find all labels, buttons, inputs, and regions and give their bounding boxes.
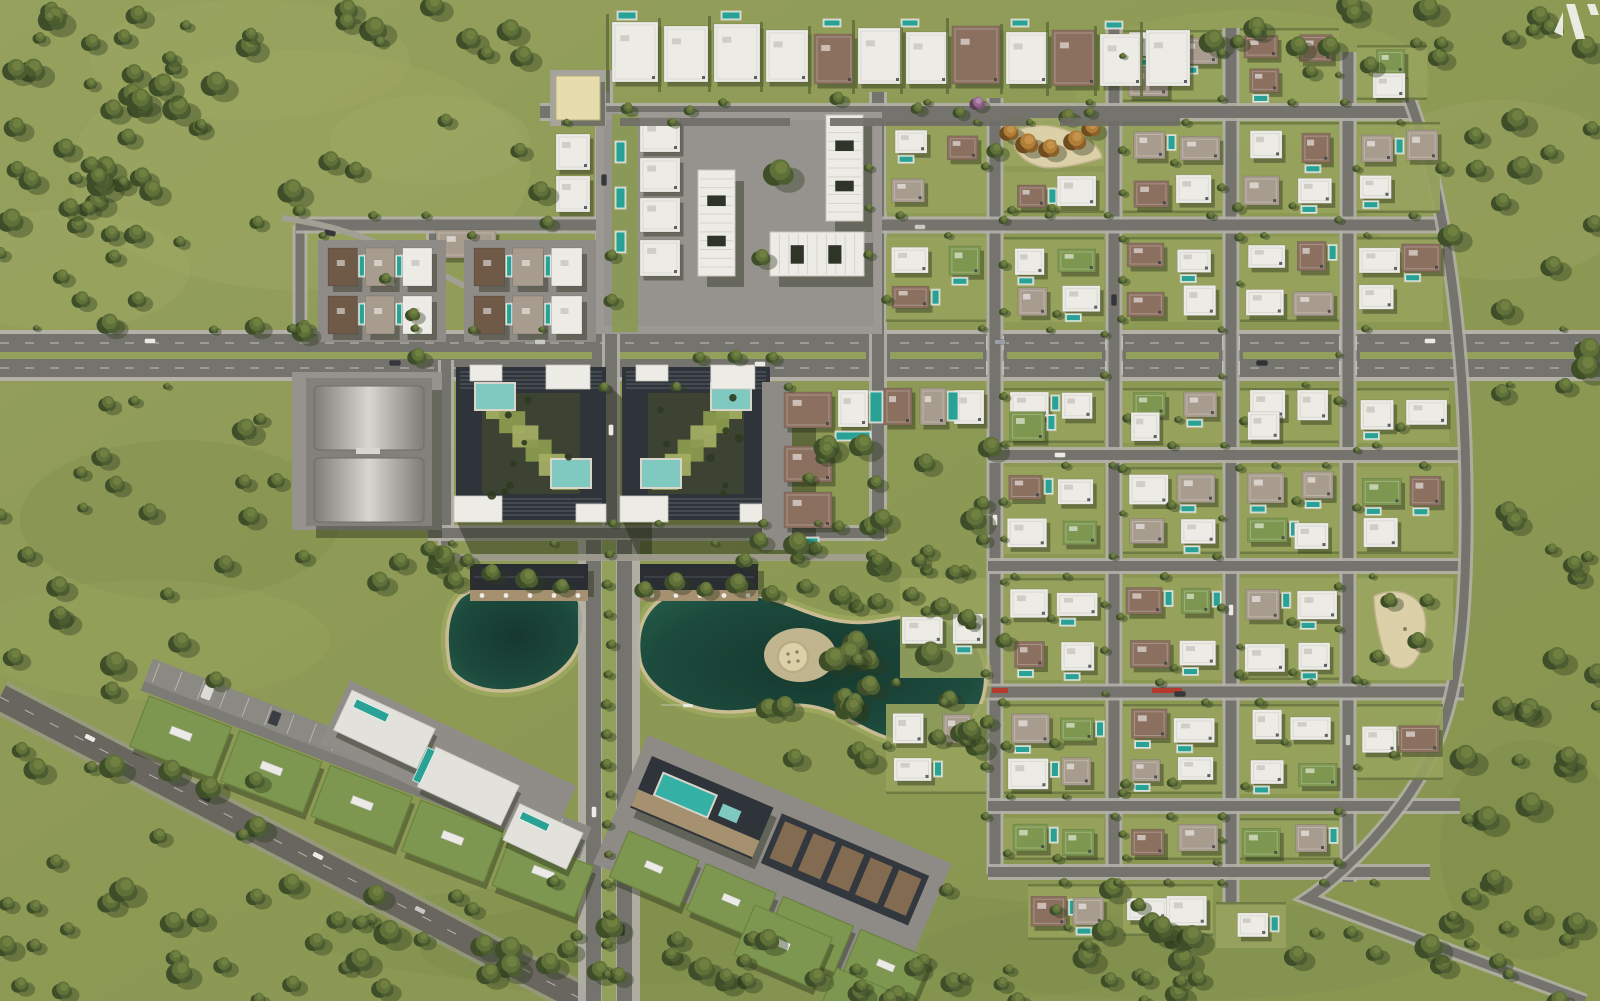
swimming-pool (1066, 315, 1080, 321)
residential-block (1122, 818, 1222, 863)
house (891, 179, 924, 202)
house (1250, 131, 1282, 159)
swimming-pool (1051, 762, 1058, 776)
swimming-pool (1019, 278, 1033, 284)
house (894, 758, 932, 781)
house (949, 246, 981, 275)
house (1242, 828, 1280, 857)
swimming-pool (616, 232, 625, 252)
residential-block (1232, 122, 1339, 215)
house (1290, 717, 1331, 740)
residential-block (998, 467, 1104, 554)
aerial-masterplan-view: Aerial masterplan rendering of a residen… (0, 0, 1600, 1001)
swimming-pool (1406, 275, 1420, 281)
villa (838, 390, 868, 427)
townhouse (513, 296, 544, 334)
residential-block (1003, 818, 1104, 865)
house (1248, 245, 1285, 268)
white-cube-house (640, 158, 680, 192)
house (1237, 913, 1268, 937)
house (1061, 758, 1090, 786)
house (1402, 244, 1441, 272)
house (1061, 642, 1094, 671)
warehouse-buildings (292, 372, 442, 538)
house (1294, 523, 1328, 549)
swimming-pool (932, 290, 939, 304)
swimming-pool (1255, 787, 1269, 793)
house (1010, 412, 1045, 441)
house (1362, 726, 1396, 752)
swimming-pool (1181, 276, 1195, 282)
house (1177, 249, 1211, 272)
car (915, 225, 926, 230)
house (1361, 135, 1393, 162)
car (602, 175, 607, 186)
villa (612, 22, 658, 82)
house (1131, 759, 1160, 781)
house (1174, 718, 1215, 743)
house (1131, 709, 1167, 739)
swimming-pool (1049, 189, 1056, 203)
house (1018, 288, 1047, 316)
villa (714, 24, 760, 82)
residential-block (1004, 172, 1104, 216)
swimming-pool (1414, 509, 1428, 515)
residential-block (1000, 704, 1105, 794)
swimming-pool (1366, 508, 1380, 514)
house (1073, 898, 1104, 925)
courtyard-apartments (454, 365, 816, 560)
car (145, 339, 156, 344)
house (1134, 132, 1165, 159)
house (1180, 136, 1220, 160)
swimming-pool (545, 256, 550, 276)
car (390, 361, 401, 366)
house (1247, 473, 1284, 503)
swimming-pool (957, 647, 971, 653)
car (592, 807, 597, 818)
white-cube-house (556, 176, 590, 212)
car (1257, 361, 1268, 366)
house (1131, 829, 1164, 855)
house (1012, 714, 1050, 744)
house (1057, 593, 1098, 616)
barrel-roof-hall (314, 386, 424, 450)
villa (952, 26, 1000, 84)
residential-block (1234, 578, 1341, 681)
swimming-pool (1254, 95, 1268, 101)
villa (784, 492, 832, 528)
swimming-pool (948, 392, 958, 420)
villa (784, 392, 832, 428)
house (1058, 249, 1096, 272)
masterplan-rendering (0, 0, 1600, 1001)
villa (920, 388, 946, 425)
lattice-roof-building (826, 115, 863, 221)
swimming-pool (1077, 928, 1091, 934)
swimming-pool (507, 256, 512, 276)
house (1359, 285, 1394, 309)
townhouse (474, 296, 505, 334)
swimming-pool (359, 304, 364, 324)
swimming-pool (953, 278, 967, 284)
house (1007, 518, 1047, 547)
house (1406, 400, 1447, 425)
residential-block (1117, 237, 1222, 325)
swimming-pool (1251, 506, 1265, 512)
swimming-pool (1065, 674, 1079, 680)
residential-block (1004, 388, 1104, 446)
swimming-pool (1019, 671, 1033, 677)
swimming-pool (397, 304, 402, 324)
swimming-pool (1048, 416, 1055, 430)
house (1250, 69, 1279, 93)
swimming-pool (935, 762, 942, 776)
residential-block (1116, 578, 1222, 680)
house (892, 286, 929, 308)
swimming-pool (902, 20, 918, 26)
house (1298, 643, 1330, 670)
house (1251, 760, 1284, 784)
courtyard-block (454, 365, 606, 522)
swimming-pool (1181, 506, 1195, 512)
house (1057, 176, 1096, 206)
swimming-pool (397, 256, 402, 276)
house (1399, 726, 1440, 753)
swimming-pool (1050, 828, 1057, 842)
residential-block (1357, 237, 1445, 322)
house (1410, 476, 1441, 506)
house (1252, 710, 1281, 740)
house (1180, 641, 1216, 666)
house (1184, 392, 1217, 417)
house (1297, 390, 1328, 420)
house (1359, 248, 1400, 273)
house (1127, 243, 1164, 267)
villa (814, 34, 854, 84)
swimming-pool (1061, 619, 1075, 625)
swimming-pool (1106, 22, 1122, 28)
swimming-pool (1165, 591, 1172, 605)
house (1134, 181, 1169, 208)
house (1063, 521, 1097, 545)
car (1346, 735, 1351, 746)
swimming-pool (616, 142, 625, 162)
house (1181, 519, 1216, 544)
pocket-park (1357, 578, 1453, 680)
swimming-pool (870, 392, 882, 422)
house (895, 130, 927, 153)
house (1360, 175, 1392, 198)
villa (884, 388, 912, 425)
residential-block (1240, 704, 1341, 794)
house (1126, 587, 1162, 614)
house (1299, 763, 1337, 786)
townhouse (551, 248, 582, 286)
house (1013, 824, 1047, 851)
house (1127, 292, 1164, 317)
house (1362, 478, 1401, 505)
house (1062, 286, 1100, 312)
house (1017, 185, 1046, 208)
house (1062, 393, 1093, 419)
villa (664, 26, 708, 82)
swimming-pool (1301, 622, 1315, 628)
townhouse (365, 296, 394, 334)
white-cube-house (556, 134, 590, 170)
swimming-pool (1302, 206, 1316, 212)
house (1248, 518, 1288, 542)
car (609, 425, 614, 436)
townhouse (403, 248, 432, 286)
house (1246, 589, 1280, 620)
rooftop-pool (552, 460, 590, 487)
house (1302, 133, 1330, 163)
villa (906, 32, 948, 84)
rooftop-pool (642, 460, 680, 487)
white-cube-house (640, 240, 680, 276)
house (1184, 285, 1216, 315)
swimming-pool (1012, 20, 1028, 26)
house (1058, 479, 1093, 504)
swimming-pool (1306, 501, 1320, 507)
swimming-pool (722, 12, 740, 19)
residential-block (886, 237, 986, 322)
house (1248, 412, 1280, 440)
car (1055, 453, 1066, 458)
swimming-pool (1188, 420, 1202, 426)
residential-block (1357, 704, 1443, 780)
house (1010, 589, 1048, 618)
house (1060, 718, 1093, 741)
swimming-pool (1135, 784, 1149, 790)
car (755, 362, 766, 367)
residential-block (1000, 578, 1104, 681)
house (1008, 758, 1048, 789)
house (1176, 175, 1211, 203)
house (1298, 178, 1332, 203)
residential-block (1123, 122, 1224, 213)
residential-block (1240, 237, 1339, 322)
house (891, 247, 928, 273)
car (535, 340, 546, 345)
villa (858, 28, 902, 84)
house (1293, 292, 1334, 316)
house (1246, 289, 1284, 315)
swimming-pool (1364, 202, 1378, 208)
villa (1100, 34, 1142, 86)
house (893, 713, 924, 743)
swimming-pool (1045, 479, 1052, 493)
swimming-pool (1097, 722, 1104, 736)
house (1009, 475, 1042, 499)
swimming-pool (545, 304, 550, 324)
rooftop-pool (476, 384, 514, 409)
swimming-pool (1302, 673, 1316, 679)
townhouse (474, 248, 505, 286)
swimming-pool (824, 20, 840, 26)
swimming-pool (1396, 139, 1403, 153)
swimming-pool (507, 304, 512, 324)
swimming-pool (618, 12, 636, 19)
house (1297, 591, 1337, 619)
house (1302, 471, 1333, 498)
residential-block (1216, 902, 1286, 948)
swimming-pool (1330, 829, 1337, 843)
lattice-roof-building (770, 232, 864, 276)
residential-block (1120, 704, 1222, 794)
cream-building (556, 76, 600, 120)
house (1295, 825, 1327, 853)
swimming-pool (1329, 245, 1336, 259)
car (1112, 295, 1117, 306)
car (1425, 339, 1436, 344)
residential-block (886, 122, 986, 213)
house (947, 136, 978, 160)
house (1243, 176, 1279, 205)
lake-deck-island (778, 642, 808, 672)
residential-block (1357, 388, 1451, 443)
house (1360, 400, 1393, 430)
townhouse (328, 248, 357, 286)
swimming-pool (1135, 741, 1149, 747)
courtyard-block (620, 365, 770, 522)
townhouse (328, 296, 357, 334)
swimming-pool (1283, 593, 1290, 607)
swimming-pool (1168, 136, 1175, 150)
red-awning (992, 688, 1008, 693)
residential-block (1352, 467, 1453, 554)
residential-block (1240, 818, 1339, 861)
swimming-pool (1306, 166, 1320, 172)
swimming-pool (616, 188, 625, 208)
swimming-pool (1185, 547, 1199, 553)
house (1167, 896, 1207, 926)
house (1182, 588, 1211, 614)
house (1406, 130, 1438, 160)
car (995, 340, 1006, 345)
residential-block (1239, 388, 1339, 444)
car (1175, 692, 1186, 697)
townhouse (551, 296, 582, 334)
swimming-pool (1271, 917, 1278, 931)
house (1015, 248, 1045, 274)
villa (766, 30, 808, 82)
swimming-pool (359, 256, 364, 276)
house (1129, 475, 1168, 505)
residential-block (1123, 467, 1222, 554)
swimming-pool (1016, 746, 1030, 752)
swimming-pool (1184, 669, 1198, 675)
house (1297, 241, 1326, 270)
house (1245, 644, 1285, 672)
residential-block (1240, 467, 1339, 554)
house (1178, 824, 1218, 851)
house (902, 617, 943, 644)
swimming-pool (1052, 396, 1059, 410)
house (1063, 829, 1095, 856)
house (1130, 640, 1170, 667)
house (1364, 518, 1398, 547)
residential-block (1122, 388, 1222, 446)
boat (683, 704, 693, 707)
white-cube-house (640, 198, 680, 232)
house (1177, 474, 1215, 503)
townhouse (513, 248, 544, 286)
residential-block (1357, 122, 1442, 213)
villa (1006, 32, 1048, 84)
house (1015, 641, 1045, 667)
barrel-roof-hall (314, 458, 424, 522)
house (1131, 412, 1160, 441)
swimming-pool (1364, 433, 1378, 439)
lattice-roof-building (698, 170, 735, 276)
swimming-pool (899, 156, 913, 162)
villa (1052, 30, 1096, 86)
house (1178, 757, 1213, 780)
residential-block (1004, 237, 1104, 322)
villa (1146, 30, 1190, 86)
swimming-pool (1213, 592, 1220, 606)
swimming-pool (1178, 746, 1192, 752)
house (1130, 519, 1164, 544)
